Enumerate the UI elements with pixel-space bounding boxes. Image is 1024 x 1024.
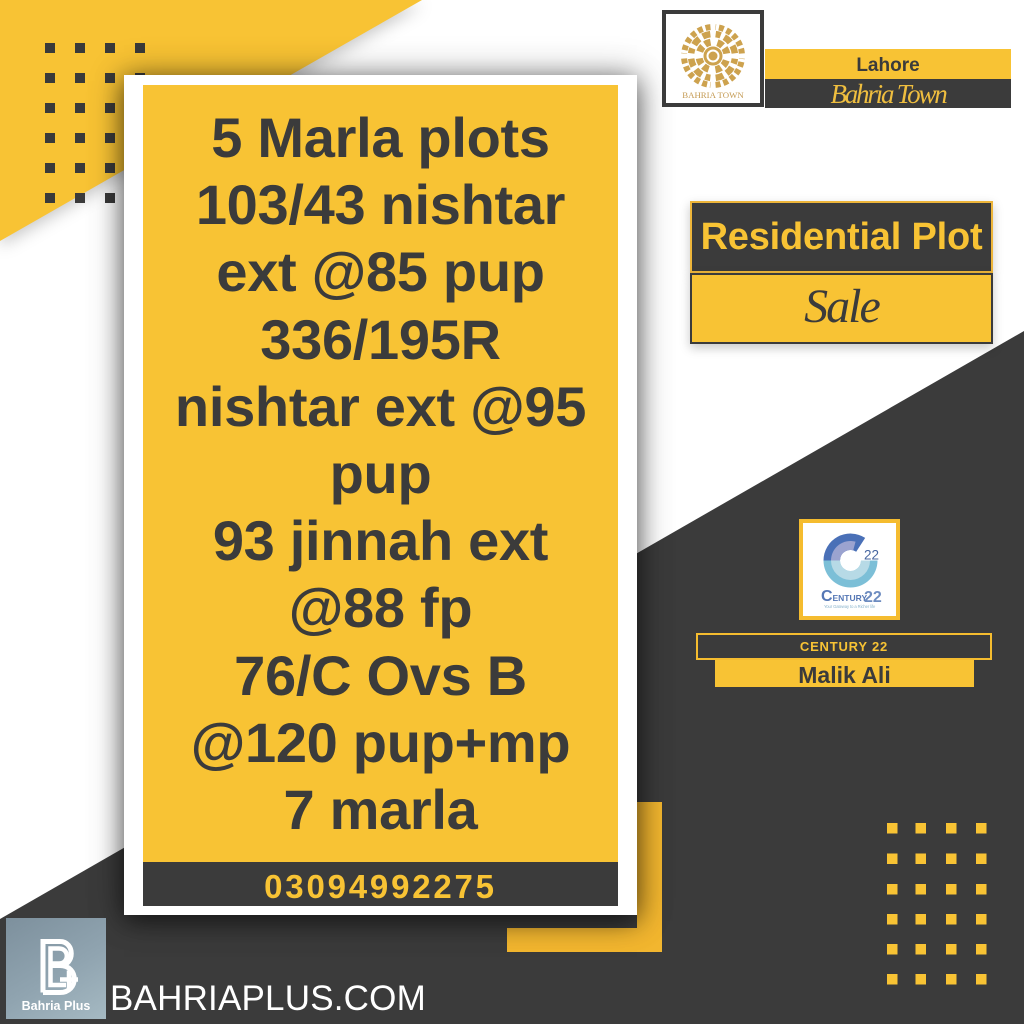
- svg-text:22: 22: [864, 548, 879, 563]
- svg-text:C: C: [821, 588, 833, 605]
- svg-text:ENTURY: ENTURY: [833, 593, 868, 603]
- svg-text:Your Gateway to a Richer life: Your Gateway to a Richer life: [824, 604, 876, 609]
